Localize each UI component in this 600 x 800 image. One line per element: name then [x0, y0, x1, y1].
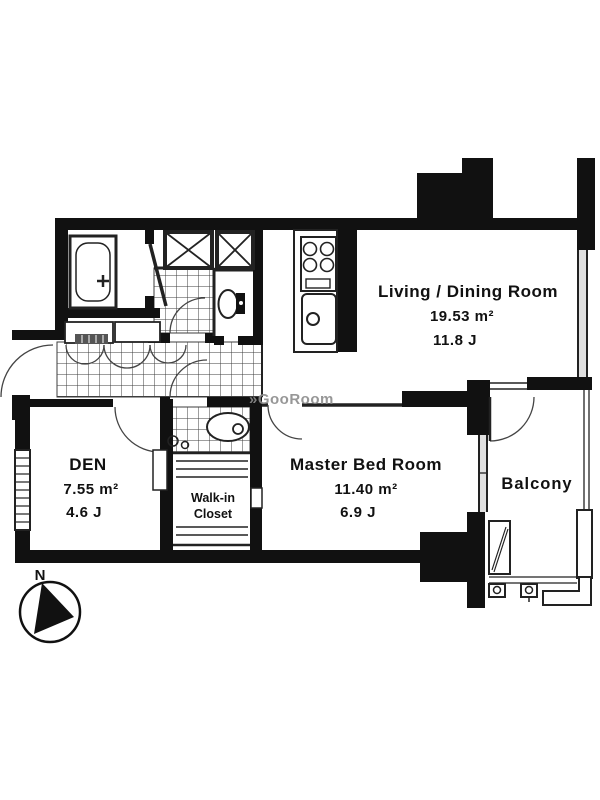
balcony-door-arc: [490, 397, 534, 441]
balcony-name: Balcony: [501, 475, 572, 493]
balcony: [489, 383, 592, 605]
toilet-room: [219, 290, 246, 318]
compass-needle-icon: [34, 583, 74, 634]
den-area: 7.55 m²: [63, 481, 118, 498]
shoe-cabinet: [115, 322, 160, 342]
floor-plan-page: Living / Dining Room 19.53 m² 11.8 J DEN…: [0, 0, 600, 800]
entrance-door-arc: [1, 345, 53, 397]
walk-in-closet-label-2: Closet: [194, 507, 233, 521]
balcony-partition: [543, 577, 591, 605]
living-room-name: Living / Dining Room: [378, 282, 558, 301]
living-window: [578, 250, 587, 377]
den-door-arc: [115, 407, 160, 452]
living-room-area: 19.53 m²: [430, 308, 494, 325]
hallway-floor: [57, 342, 262, 397]
compass-north-label: N: [35, 567, 46, 584]
master-bedroom-size-j: 6.9 J: [340, 504, 376, 521]
den-size-j: 4.6 J: [66, 504, 102, 521]
walk-in-closet-label-1: Walk-in: [191, 491, 235, 505]
living-room-size-j: 11.8 J: [433, 332, 477, 349]
kitchen: [294, 230, 337, 352]
closet-door: [251, 488, 262, 508]
toilet-icon: [219, 290, 238, 318]
den-side-door: [153, 450, 167, 490]
watermark: »GooRoom: [249, 391, 334, 408]
den-name: DEN: [69, 455, 106, 474]
master-door-arc: [268, 405, 302, 439]
compass: N: [20, 567, 80, 642]
master-bedroom-name: Master Bed Room: [290, 455, 442, 474]
pipe-shafts: [165, 232, 253, 268]
master-bedroom-area: 11.40 m²: [334, 481, 397, 498]
floor-plan: Living / Dining Room 19.53 m² 11.8 J DEN…: [0, 0, 600, 800]
